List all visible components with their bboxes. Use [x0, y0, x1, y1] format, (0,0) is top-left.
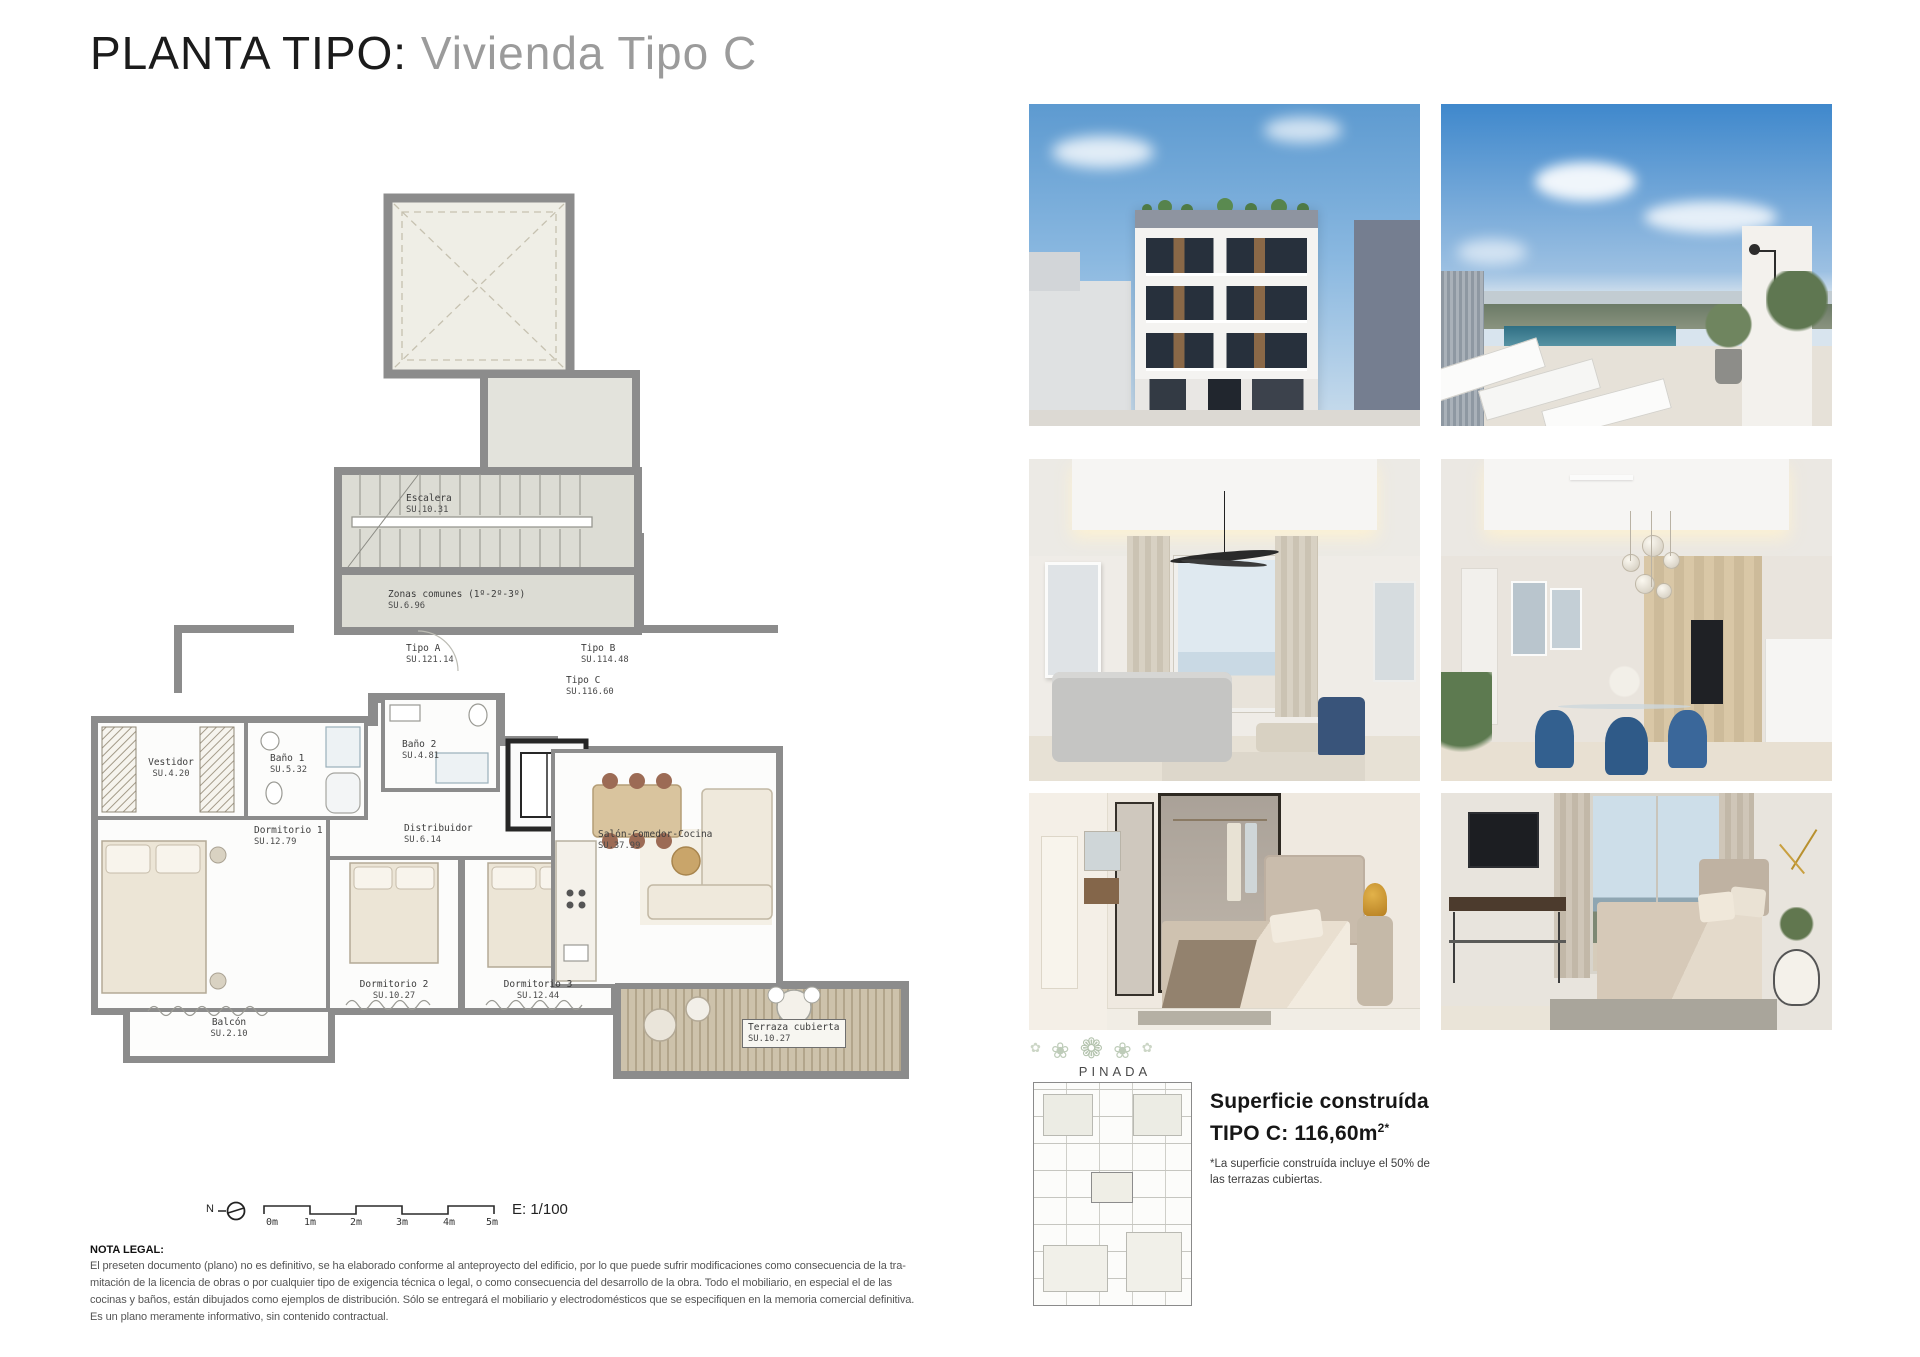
floor-plan-drawing — [88, 193, 918, 1083]
legal-line: Es un plano meramente informativo, sin c… — [90, 1309, 870, 1326]
plant — [1703, 304, 1754, 356]
legal-line: El preseten documento (plano) no es defi… — [90, 1258, 870, 1275]
neighbor-building-left-upper — [1029, 252, 1080, 291]
legal-line: mitación de la licencia de obras o por c… — [90, 1275, 870, 1292]
scale-tick-3m: 3m — [396, 1217, 408, 1228]
legal-note: NOTA LEGAL: El preseten documento (plano… — [90, 1244, 870, 1326]
room-label-bano-2: Baño 2SU.4.81 — [402, 739, 439, 762]
window-row — [1146, 238, 1308, 276]
floral-icon: ✿ — [1142, 1040, 1155, 1055]
console-leg — [1558, 912, 1560, 983]
north-label: N — [206, 1203, 214, 1215]
console-table — [1449, 897, 1566, 911]
mini-plan-room — [1126, 1232, 1181, 1292]
legal-heading: NOTA LEGAL: — [90, 1244, 870, 1256]
room-label-tipo-a: Tipo ASU.121.14 — [406, 643, 454, 666]
curtain-right — [1275, 536, 1318, 716]
room-label-salon-comedor-cocina: Salón-Comedor-CocinaSU.37.99 — [598, 829, 712, 852]
floral-icon: ✿ — [1030, 1040, 1043, 1055]
room-label-distribuidor: DistribuidorSU.6.14 — [404, 823, 473, 846]
plant — [1766, 271, 1829, 342]
chandelier-stem — [1651, 511, 1652, 588]
glass-table — [1558, 704, 1691, 709]
pedestal — [1357, 916, 1392, 1006]
roof-parapet — [1135, 210, 1319, 227]
wall-tv — [1468, 812, 1538, 868]
room-label-dormitorio-1: Dormitorio 1SU.12.79 — [254, 825, 323, 848]
oven-column — [1691, 620, 1722, 704]
room-label-tipo-b: Tipo BSU.114.48 — [581, 643, 629, 666]
hanging-clothes — [1227, 823, 1241, 901]
room-label-zonas-comunes: Zonas comunes (1º-2º-3º)SU.6.96 — [388, 589, 525, 612]
closet-rail — [1173, 819, 1267, 821]
console-leg — [1453, 912, 1455, 983]
plant — [1441, 672, 1492, 781]
floral-icon: ❁ — [1080, 1033, 1105, 1064]
mini-building-plan — [1033, 1082, 1192, 1306]
scale-tick-4m: 4m — [443, 1217, 455, 1228]
blue-chair — [1605, 717, 1648, 775]
built-area-heading-line2: TIPO C: 116,60m2* — [1210, 1115, 1429, 1147]
bubble-chandelier — [1613, 511, 1699, 620]
rug — [1138, 1011, 1271, 1025]
room-label-bano-1: Baño 1SU.5.32 — [270, 753, 307, 776]
cloud — [1535, 162, 1637, 201]
scale-tick-0m: 0m — [266, 1217, 278, 1228]
photo-building-facade-render — [1029, 104, 1420, 426]
floor — [1441, 1006, 1550, 1030]
wall-art — [1511, 581, 1546, 656]
gold-lamp — [1363, 883, 1386, 916]
scale-ratio-label: E: 1/100 — [512, 1201, 568, 1218]
compass-icon — [218, 1199, 248, 1223]
neighbor-building-right — [1354, 220, 1420, 426]
mini-plan-room — [1043, 1094, 1092, 1136]
scale-bar — [262, 1202, 502, 1216]
room-label-balcon: BalcónSU.2.10 — [184, 1017, 274, 1040]
railing — [1441, 271, 1484, 426]
photo-bedroom-suite-render — [1029, 793, 1420, 1030]
scale-tick-5m: 5m — [486, 1217, 498, 1228]
ceiling-light-panel — [1570, 475, 1633, 480]
legal-line: cocinas y baños, están dibujados como ej… — [90, 1292, 870, 1309]
cloud — [1264, 117, 1342, 143]
sofa — [1052, 672, 1232, 762]
floor-plan: EscaleraSU.10.31 Zonas comunes (1º-2º-3º… — [88, 193, 918, 1083]
door — [1041, 836, 1078, 990]
plant — [1777, 907, 1816, 950]
shower-head — [1749, 244, 1760, 255]
bubble — [1642, 535, 1664, 557]
pillow — [1698, 891, 1736, 923]
mini-plan-room — [1133, 1094, 1182, 1136]
main-building — [1135, 210, 1319, 426]
vanity-mirror — [1084, 831, 1121, 871]
console-shelf — [1449, 940, 1566, 943]
hanging-clothes — [1245, 823, 1257, 893]
room-label-escalera: EscaleraSU.10.31 — [406, 493, 452, 516]
brand-name: PINADA — [1032, 1064, 1198, 1079]
cloud — [1052, 136, 1154, 168]
rug — [1550, 999, 1777, 1030]
wall-art — [1550, 588, 1581, 650]
mini-plan-room — [1043, 1245, 1108, 1291]
bubble — [1635, 574, 1655, 594]
room-label-dormitorio-2: Dormitorio 2SU.10.27 — [336, 979, 452, 1002]
blue-chair — [1668, 710, 1707, 768]
vanity — [1084, 878, 1119, 904]
neighbor-building-left — [1029, 281, 1131, 426]
pendant-cord — [1224, 491, 1226, 555]
room-label-terraza-cubierta: Terraza cubiertaSU.10.27 — [742, 1019, 846, 1048]
room-label-vestidor: VestidorSU.4.20 — [138, 757, 204, 780]
photo-bedroom-view-render — [1441, 793, 1832, 1030]
brand-floral-decor: ✿ ❀ ❁ ❀ ✿ — [1030, 1032, 1200, 1066]
armchair — [1318, 697, 1365, 755]
chandelier-stem — [1630, 511, 1631, 561]
window-row — [1146, 286, 1308, 324]
scale-tick-2m: 2m — [350, 1217, 362, 1228]
room-label-dormitorio-3: Dormitorio 3SU.12.44 — [476, 979, 600, 1002]
mini-plan-core — [1091, 1172, 1134, 1203]
blue-chair — [1535, 710, 1574, 768]
chandelier-stem — [1670, 511, 1671, 557]
page-title-main: PLANTA TIPO: — [90, 27, 407, 79]
wall-art — [1045, 562, 1102, 677]
side-table — [1773, 949, 1820, 1005]
photo-dining-kitchen-render — [1441, 459, 1832, 781]
photo-living-room-render — [1029, 459, 1420, 781]
built-area-footnote: *La superficie construída incluye el 50%… — [1210, 1156, 1430, 1188]
bubble — [1663, 552, 1680, 569]
page-title-sub: Vivienda Tipo C — [421, 27, 757, 79]
brochure-page: PLANTA TIPO: Vivienda Tipo C — [0, 0, 1920, 1357]
window-row — [1146, 333, 1308, 371]
room-label-tipo-c: Tipo CSU.116.60 — [566, 675, 614, 698]
mirror — [1373, 581, 1416, 682]
built-area-heading: Superficie construída TIPO C: 116,60m2* — [1210, 1088, 1429, 1147]
flower-centerpiece — [1597, 659, 1652, 704]
built-area-sup: 2* — [1378, 1121, 1390, 1135]
bubble — [1656, 583, 1672, 599]
floral-icon: ❀ — [1051, 1038, 1071, 1063]
floral-icon: ❀ — [1113, 1038, 1133, 1063]
cloud — [1457, 239, 1527, 265]
built-area-heading-line1: Superficie construída — [1210, 1088, 1429, 1115]
page-title: PLANTA TIPO: Vivienda Tipo C — [90, 26, 757, 80]
coffee-table — [1256, 723, 1322, 752]
street — [1029, 410, 1420, 426]
photo-rooftop-pool-render — [1441, 104, 1832, 426]
plant-pot — [1715, 349, 1742, 384]
scale-tick-1m: 1m — [304, 1217, 316, 1228]
